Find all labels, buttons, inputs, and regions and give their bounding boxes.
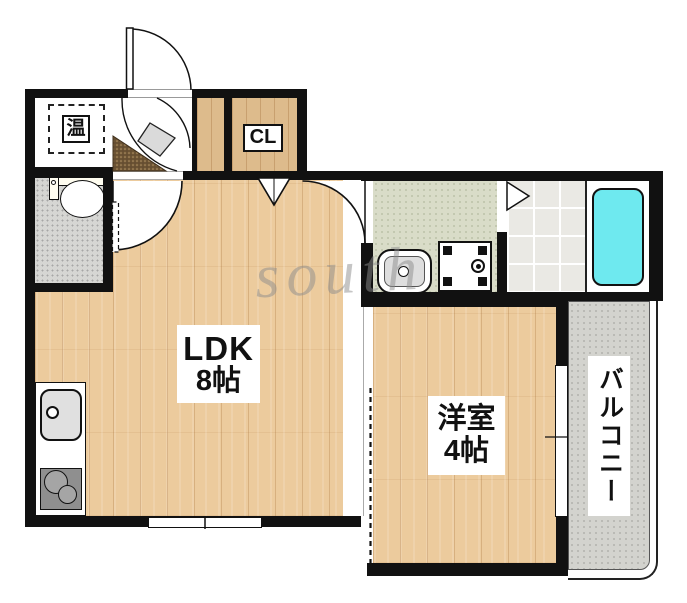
western-room-size: 4帖 xyxy=(444,436,489,467)
closet-label: CL xyxy=(243,124,283,152)
toilet-bowl xyxy=(60,180,105,218)
wall xyxy=(649,171,663,301)
hall-doorway-threshold xyxy=(113,171,183,180)
wall xyxy=(556,517,568,576)
wall xyxy=(192,98,197,172)
bathroom-tile-floor xyxy=(507,181,585,292)
wall xyxy=(361,171,663,181)
pan-corner xyxy=(478,277,487,286)
wall xyxy=(25,89,128,98)
stove-burner-icon xyxy=(58,485,77,504)
ldk-name: LDK xyxy=(183,331,254,367)
wall xyxy=(25,89,35,527)
entrance-hall-floor xyxy=(113,98,192,172)
ldk-label: LDK 8帖 xyxy=(177,325,260,403)
watermark: south xyxy=(253,234,426,314)
pan-corner xyxy=(478,246,487,255)
ldk-south-window xyxy=(148,517,262,528)
ldk-size: 8帖 xyxy=(196,366,241,397)
water-heater-name: 温 xyxy=(66,119,85,140)
faucet-icon xyxy=(46,406,59,419)
floor-plan: LDK 8帖 洋室 4帖 バルコニー CL 温 south xyxy=(0,0,687,603)
wall xyxy=(497,232,507,292)
pan-drain-dot xyxy=(476,264,481,269)
water-heater-label: 温 xyxy=(62,115,90,143)
wall xyxy=(192,89,307,98)
balcony-label: バルコニー xyxy=(588,356,630,516)
balcony-name: バルコニー xyxy=(596,366,623,506)
bathtub xyxy=(592,188,644,286)
entrance-threshold xyxy=(128,89,192,98)
western-room-label: 洋室 4帖 xyxy=(428,396,505,475)
closet-name: CL xyxy=(250,127,277,149)
western-room-name: 洋室 xyxy=(437,404,495,435)
pan-corner xyxy=(443,277,452,286)
wall xyxy=(556,299,568,365)
wall xyxy=(25,167,113,178)
pan-corner xyxy=(443,246,452,255)
toilet-button-icon xyxy=(51,180,56,185)
wall xyxy=(224,98,232,172)
bathtub-platform-edge xyxy=(585,181,587,292)
entrance-door xyxy=(127,28,134,89)
entrance-door-swing-arc xyxy=(133,29,191,90)
wall xyxy=(103,178,113,292)
wall xyxy=(297,89,307,180)
shoe-storage-floor xyxy=(197,98,224,172)
wall xyxy=(183,171,373,180)
wall xyxy=(25,283,113,292)
floor-edge-line xyxy=(363,301,364,516)
western-room-balcony-window xyxy=(555,365,568,517)
wall xyxy=(367,563,568,576)
